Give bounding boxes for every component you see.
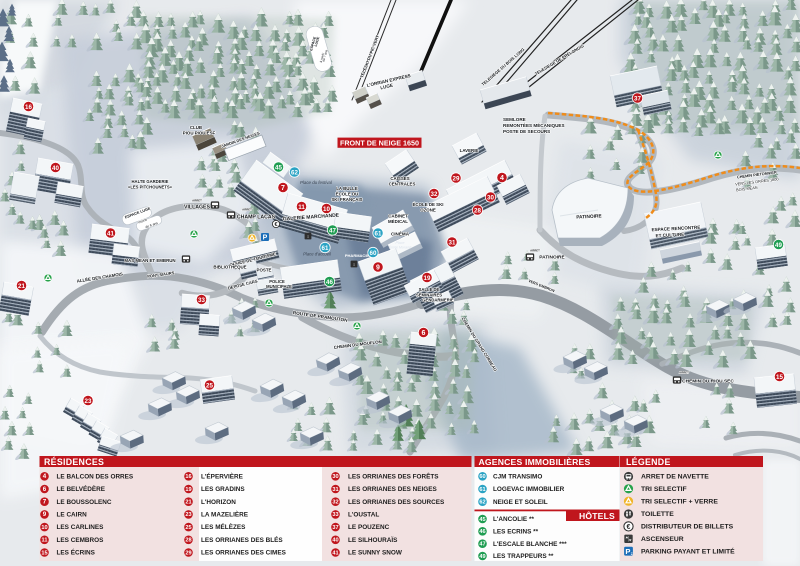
svg-text:4: 4 — [500, 175, 504, 182]
svg-text:Place du festival: Place du festival — [300, 180, 333, 185]
svg-text:LE SUNNY SNOW: LE SUNNY SNOW — [348, 550, 403, 557]
svg-text:AGENCES IMMOBILIÈRES: AGENCES IMMOBILIÈRES — [479, 457, 591, 467]
svg-text:10: 10 — [323, 206, 330, 213]
svg-text:ÉCOLE DE SKI: ÉCOLE DE SKI — [413, 202, 444, 207]
svg-text:LES ORRIANES DES NEIGES: LES ORRIANES DES NEIGES — [348, 486, 438, 493]
svg-text:37: 37 — [332, 525, 338, 531]
svg-text:↕: ↕ — [353, 262, 355, 267]
svg-text:41: 41 — [107, 230, 114, 237]
svg-text:31: 31 — [332, 487, 338, 493]
svg-text:PIOU PIOU ESF: PIOU PIOU ESF — [183, 131, 216, 136]
svg-text:TRI SELECTIF + VERRE: TRI SELECTIF + VERRE — [641, 498, 718, 505]
svg-text:62: 62 — [291, 169, 298, 176]
svg-text:7: 7 — [281, 185, 285, 192]
svg-text:46: 46 — [326, 279, 333, 286]
svg-text:HÔTELS: HÔTELS — [579, 510, 615, 521]
svg-text:15: 15 — [776, 374, 783, 381]
svg-text:47: 47 — [479, 542, 485, 548]
svg-text:MUNICIPALE: MUNICIPALE — [266, 284, 292, 289]
svg-text:29: 29 — [453, 175, 460, 182]
svg-text:16: 16 — [185, 474, 191, 480]
svg-text:LES ÉCRINS: LES ÉCRINS — [57, 548, 96, 557]
svg-text:P: P — [625, 547, 630, 556]
svg-text:LOGEVAC IMMOBILIER: LOGEVAC IMMOBILIER — [493, 486, 565, 493]
svg-text:61: 61 — [322, 245, 329, 252]
svg-text:L'ESCALE BLANCHE ***: L'ESCALE BLANCHE *** — [493, 541, 567, 548]
svg-text:L'HORIZON: L'HORIZON — [201, 499, 236, 506]
svg-text:«LES PITCHOUNETS»: «LES PITCHOUNETS» — [128, 185, 173, 190]
svg-text:SALLE DE: SALLE DE — [419, 287, 440, 292]
svg-text:49: 49 — [479, 554, 485, 560]
svg-text:31: 31 — [449, 239, 456, 246]
svg-text:23: 23 — [85, 398, 92, 405]
svg-text:15: 15 — [41, 550, 47, 556]
svg-text:ARRET: ARRET — [242, 208, 252, 212]
svg-text:CAISSES: CAISSES — [390, 176, 409, 181]
svg-text:CINÉMA: CINÉMA — [391, 230, 410, 237]
svg-text:LES MÉLÈZES: LES MÉLÈZES — [201, 522, 246, 531]
svg-text:33: 33 — [198, 297, 205, 304]
svg-text:9: 9 — [376, 264, 380, 271]
svg-text:SKI FRANÇAIS: SKI FRANÇAIS — [331, 197, 362, 202]
svg-text:LES ECRINS **: LES ECRINS ** — [493, 528, 539, 535]
svg-text:MAS MEAN ET EMBRUN: MAS MEAN ET EMBRUN — [124, 258, 175, 263]
svg-text:BIBLIOTHÈQUE: BIBLIOTHÈQUE — [213, 265, 246, 270]
svg-text:CHEMIN DU RIOU SEC: CHEMIN DU RIOU SEC — [682, 379, 734, 385]
svg-text:62: 62 — [479, 500, 485, 506]
svg-text:40: 40 — [52, 165, 59, 172]
svg-text:32: 32 — [431, 191, 438, 198]
svg-text:LES GRADINS: LES GRADINS — [201, 486, 245, 493]
svg-text:11: 11 — [298, 204, 305, 211]
svg-text:30: 30 — [332, 474, 338, 480]
svg-text:60: 60 — [479, 474, 485, 480]
svg-text:POSTE DE SECOURS: POSTE DE SECOURS — [503, 129, 550, 134]
svg-text:41: 41 — [332, 550, 338, 556]
svg-text:25: 25 — [185, 525, 191, 531]
svg-text:19: 19 — [185, 487, 191, 493]
svg-text:LES ORRIANES DES FORÊTS: LES ORRIANES DES FORÊTS — [348, 471, 439, 480]
svg-text:LES ORRIANES DES BLÉS: LES ORRIANES DES BLÉS — [201, 535, 283, 544]
svg-text:L'ANCOLIE **: L'ANCOLIE ** — [493, 516, 534, 523]
svg-text:REMONTÉES MÉCANIQUES: REMONTÉES MÉCANIQUES — [503, 121, 565, 128]
svg-text:33: 33 — [332, 512, 338, 518]
svg-text:ÉCOLE DU: ÉCOLE DU — [336, 192, 359, 197]
svg-text:4: 4 — [43, 473, 47, 480]
svg-text:ARRET: ARRET — [530, 249, 540, 253]
svg-text:49: 49 — [775, 242, 782, 249]
svg-text:HALTE GARDERIE: HALTE GARDERIE — [132, 179, 169, 184]
svg-text:FRONT DE NEIGE 1650: FRONT DE NEIGE 1650 — [340, 139, 419, 148]
svg-text:45: 45 — [479, 517, 485, 523]
svg-text:LA BULLE: LA BULLE — [336, 186, 358, 191]
svg-text:10: 10 — [41, 525, 47, 531]
svg-text:LE BOUSSOLENC: LE BOUSSOLENC — [57, 499, 112, 506]
svg-text:7: 7 — [43, 499, 47, 506]
svg-text:NEIGE ET SOLEIL: NEIGE ET SOLEIL — [493, 499, 548, 506]
svg-text:CJM TRANSIMO: CJM TRANSIMO — [493, 473, 542, 480]
svg-text:LE BELVÉDÈRE: LE BELVÉDÈRE — [57, 484, 106, 493]
svg-text:21: 21 — [185, 500, 191, 506]
svg-text:LA MAZELIÈRE: LA MAZELIÈRE — [201, 510, 249, 519]
svg-text:OZONE: OZONE — [420, 208, 436, 213]
svg-text:LE BALCON DES ORRES: LE BALCON DES ORRES — [57, 473, 134, 480]
svg-text:L'ÉPERVIÈRE: L'ÉPERVIÈRE — [201, 471, 244, 480]
svg-text:45: 45 — [275, 164, 282, 171]
svg-text:Place: Place — [396, 241, 405, 245]
svg-text:TRI SELECTIF: TRI SELECTIF — [641, 486, 687, 493]
svg-text:PATINOIRE: PATINOIRE — [539, 255, 565, 261]
svg-text:LE POUZENC: LE POUZENC — [348, 524, 390, 531]
svg-text:16: 16 — [25, 104, 32, 111]
svg-text:P: P — [263, 235, 268, 242]
svg-text:Émile Morand: Émile Morand — [389, 245, 412, 250]
svg-text:SEMLORE: SEMLORE — [503, 117, 526, 122]
svg-text:32: 32 — [332, 500, 338, 506]
svg-text:CENTRALES: CENTRALES — [389, 182, 416, 187]
svg-text:LES ORRIANES DES CIMES: LES ORRIANES DES CIMES — [201, 550, 287, 557]
svg-text:LE CAIRN: LE CAIRN — [57, 512, 88, 519]
svg-text:ARRET: ARRET — [679, 371, 689, 375]
svg-text:PARKING PAYANT ET LIMITÉ: PARKING PAYANT ET LIMITÉ — [641, 546, 735, 555]
svg-text:47: 47 — [329, 227, 336, 234]
svg-text:€: € — [627, 524, 631, 531]
svg-text:L'OUSTAL: L'OUSTAL — [348, 512, 379, 519]
svg-text:VILLAGES: VILLAGES — [184, 205, 210, 211]
svg-text:PHARMACIE: PHARMACIE — [345, 253, 370, 258]
svg-text:DISTRIBUTEUR DE BILLETS: DISTRIBUTEUR DE BILLETS — [641, 524, 734, 531]
svg-text:40: 40 — [332, 538, 338, 544]
svg-text:LÉGENDE: LÉGENDE — [626, 457, 671, 467]
svg-text:19: 19 — [424, 275, 431, 282]
svg-text:46: 46 — [479, 529, 485, 535]
svg-text:€: € — [274, 222, 277, 228]
svg-text:9: 9 — [43, 511, 47, 518]
svg-text:↕: ↕ — [307, 234, 309, 239]
svg-text:30: 30 — [487, 194, 494, 201]
svg-text:LES TRAPPEURS **: LES TRAPPEURS ** — [493, 553, 554, 560]
svg-text:23: 23 — [185, 512, 191, 518]
svg-text:TOILETTE: TOILETTE — [641, 511, 674, 518]
svg-text:LE SILHOURAÏS: LE SILHOURAÏS — [348, 536, 398, 544]
svg-text:RÉSIDENCES: RÉSIDENCES — [44, 457, 104, 467]
svg-text:ARRET DE NAVETTE: ARRET DE NAVETTE — [641, 474, 709, 481]
svg-text:ARRET: ARRET — [192, 199, 202, 203]
svg-text:LES CARLINES: LES CARLINES — [57, 524, 105, 531]
svg-text:MÉDICAL: MÉDICAL — [388, 219, 408, 224]
svg-text:25: 25 — [206, 382, 213, 389]
svg-text:11: 11 — [42, 538, 48, 544]
svg-text:LES CEMBROS: LES CEMBROS — [57, 537, 105, 544]
svg-text:61: 61 — [375, 230, 382, 237]
svg-text:6: 6 — [43, 486, 47, 493]
svg-text:LES ORRIANES DES SOURCES: LES ORRIANES DES SOURCES — [348, 499, 445, 506]
svg-text:60: 60 — [370, 250, 377, 257]
svg-text:CABINET: CABINET — [388, 214, 408, 219]
svg-text:37: 37 — [634, 95, 641, 102]
svg-text:POSTE: POSTE — [257, 268, 272, 273]
svg-text:CHAMP LACAS: CHAMP LACAS — [237, 215, 276, 221]
svg-text:ASCENSEUR: ASCENSEUR — [641, 536, 684, 543]
svg-text:28: 28 — [474, 207, 481, 214]
svg-text:21: 21 — [18, 283, 25, 290]
svg-text:28: 28 — [185, 538, 191, 544]
svg-text:61: 61 — [479, 487, 485, 493]
svg-text:GENDARMERIE: GENDARMERIE — [422, 298, 454, 303]
svg-text:LAVERIE: LAVERIE — [460, 148, 479, 153]
svg-text:CLUB: CLUB — [190, 125, 202, 130]
svg-text:29: 29 — [185, 550, 191, 556]
svg-text:6: 6 — [422, 330, 426, 337]
